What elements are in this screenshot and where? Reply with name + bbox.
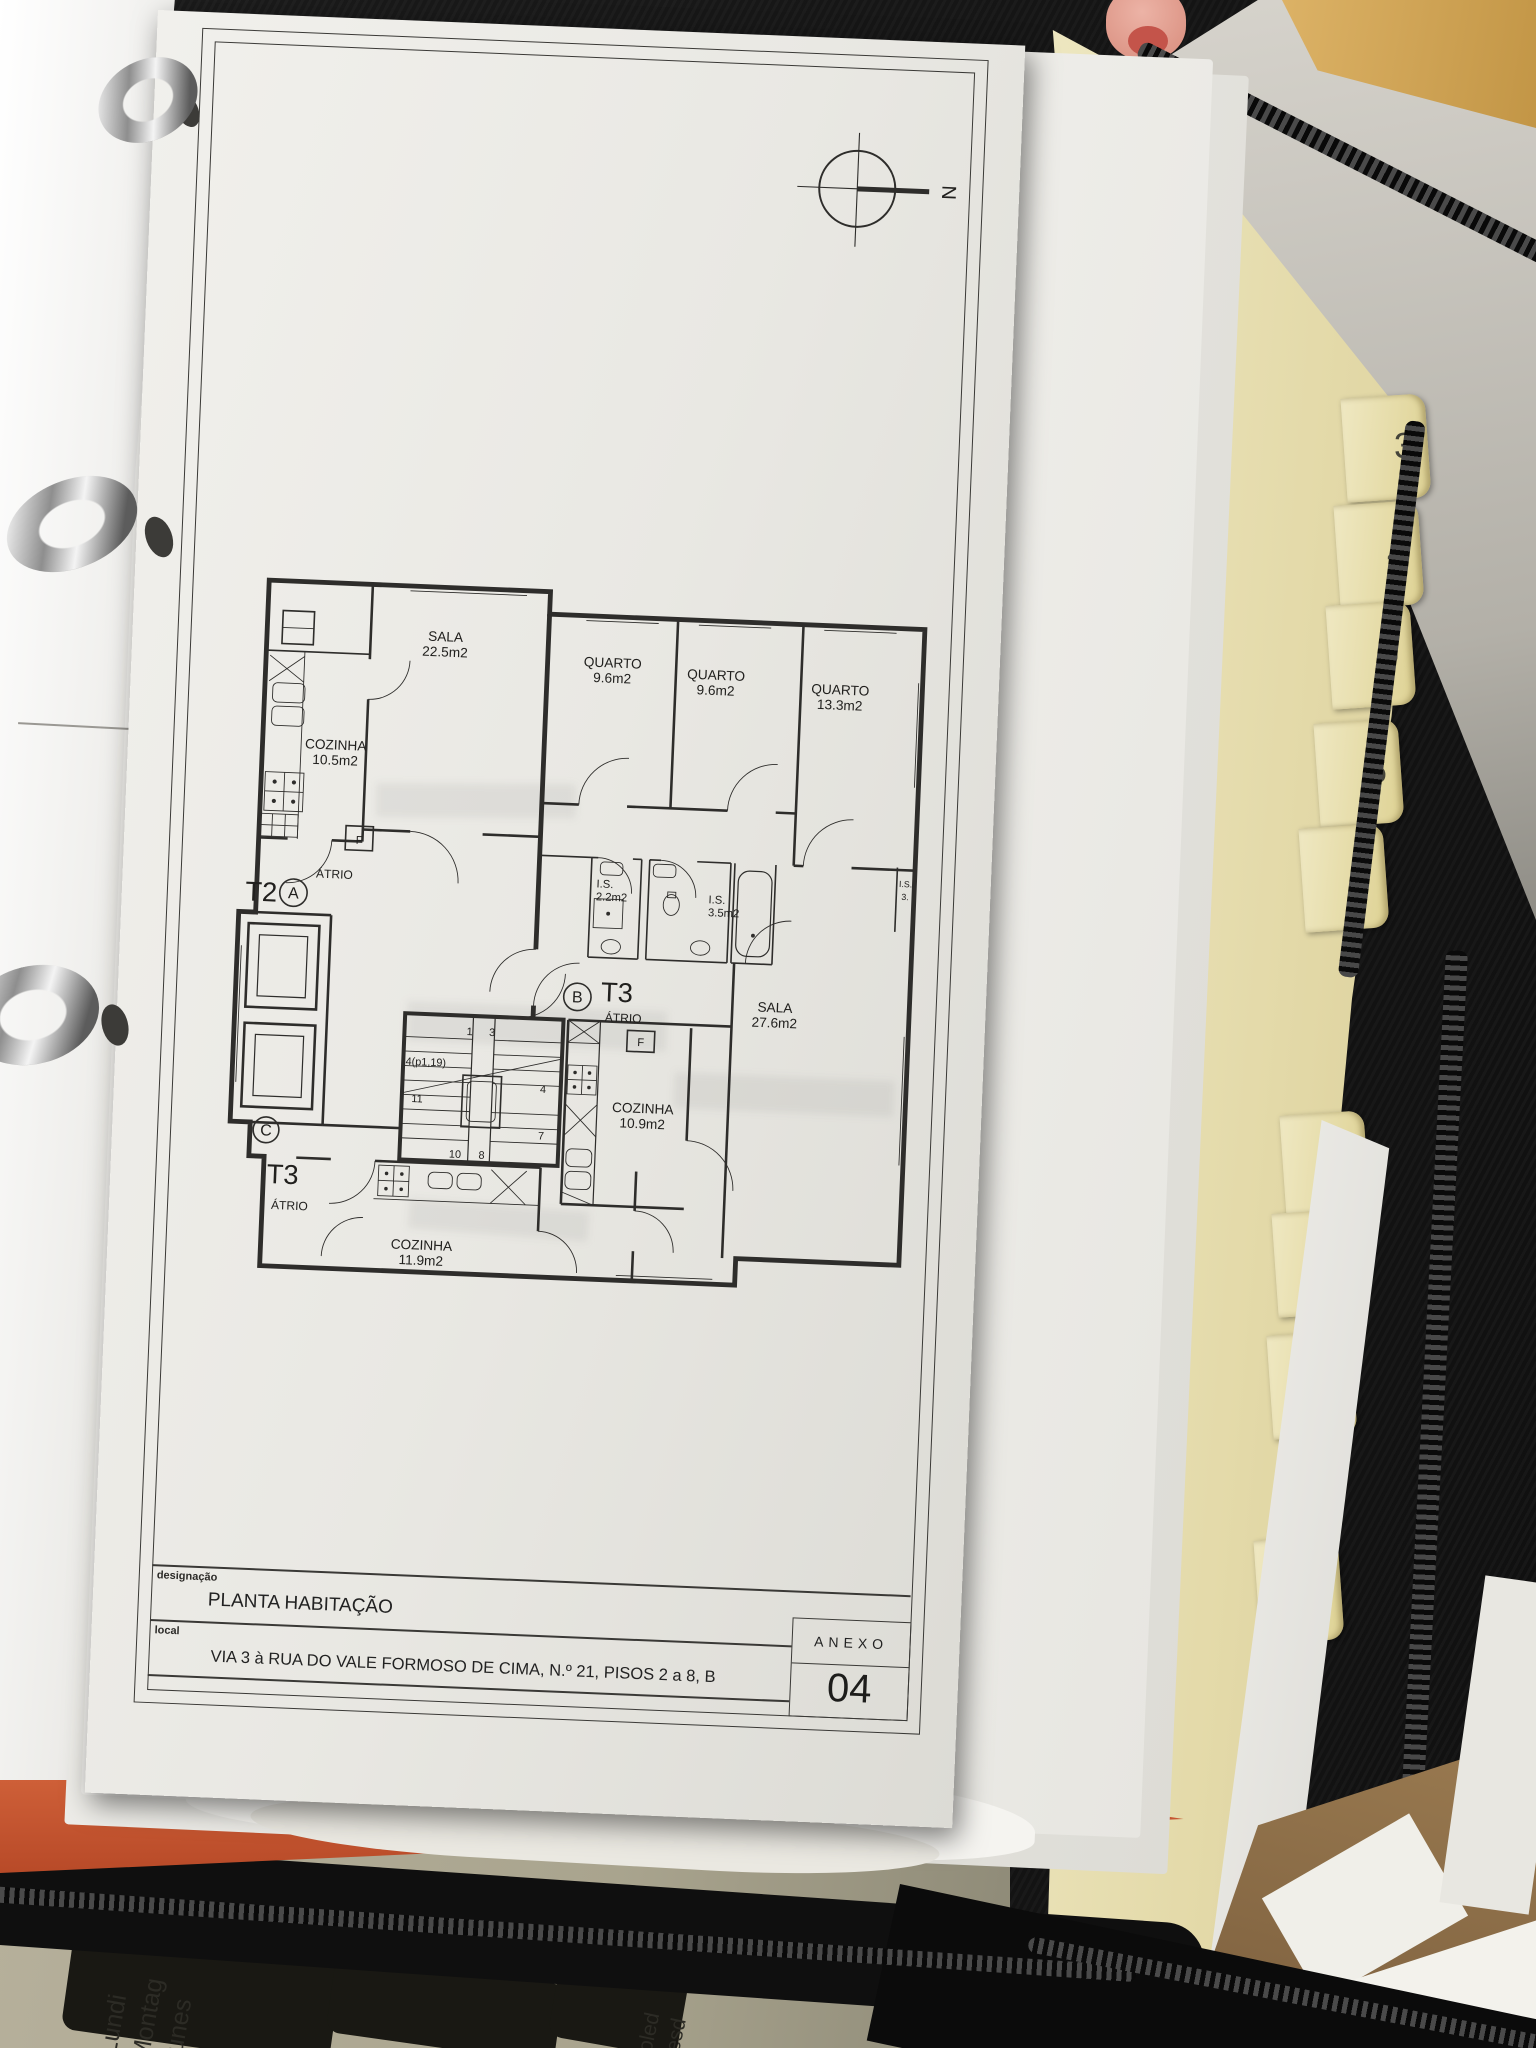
stair-number: 11 [411, 1093, 423, 1105]
f-marker: F [637, 1037, 644, 1049]
elevators [230, 911, 409, 1128]
anexo-number: 04 [790, 1664, 909, 1714]
f-marker: F [355, 835, 362, 847]
north-label: N [937, 185, 960, 200]
stair-number: 1 [466, 1026, 473, 1038]
room-label: QUARTO [584, 654, 643, 671]
room-area: 27.6m2 [751, 1015, 797, 1032]
room-area: 11.9m2 [398, 1252, 443, 1269]
north-compass: N [777, 124, 982, 262]
bathrooms [536, 855, 776, 964]
anexo-box: ANEXO 04 [789, 1617, 912, 1721]
room-labels: SALA 22.5m2 QUARTO 9.6m2 QUARTO 9.6m2 QU… [284, 624, 871, 1286]
unit-letter: B [572, 988, 583, 1006]
atrio-label: ÁTRIO [316, 866, 353, 882]
floor-plan: F [180, 558, 950, 1332]
atrio-label: ÁTRIO [605, 1009, 642, 1025]
room-label: I.S. [596, 878, 613, 891]
unit-letter: A [288, 884, 300, 902]
room-area: 22.5m2 [422, 644, 468, 661]
t3c-area [292, 1158, 677, 1283]
room-area: 9.6m2 [593, 670, 632, 687]
unit-type: T3 [600, 976, 633, 1008]
atrio-label: ÁTRIO [271, 1197, 308, 1213]
sala-t2-walls [361, 830, 541, 887]
stair-number: 4(p1,19) [405, 1056, 446, 1070]
designacao-label: designação [157, 1569, 218, 1583]
room-area: 9.6m2 [696, 682, 735, 699]
room-label: I.S. [708, 894, 725, 907]
local-label: local [154, 1624, 180, 1637]
room-area: 10.5m2 [312, 752, 358, 769]
room-area: 2.2m2 [596, 891, 628, 904]
room-label: I.S. [899, 879, 913, 890]
photo-scene: 3 4 5 6 7 8 9 0 2 Lundi Montag Lunes Ma … [0, 0, 1536, 2048]
edge-is-room: I.S. 3. [895, 868, 913, 933]
drawing-sheet: N [85, 10, 1025, 1828]
quartos [540, 614, 925, 870]
room-area: 13.3m2 [817, 697, 863, 714]
unit-type: T2 [245, 875, 278, 907]
room-label: SALA [757, 1000, 793, 1016]
anexo-label: ANEXO [792, 1618, 911, 1668]
stair-number: 7 [538, 1130, 545, 1142]
stair-number: 8 [478, 1150, 485, 1162]
stair-number: 10 [449, 1148, 462, 1160]
stairwell: 1 3 4(p1,19) 4 11 7 10 8 [399, 967, 565, 1166]
room-area: 3.5m2 [708, 907, 740, 920]
room-label: QUARTO [811, 681, 870, 698]
kitchen-t2: F [257, 580, 413, 887]
binder-tab: 5 [1325, 600, 1416, 710]
room-area: 10.9m2 [619, 1115, 665, 1132]
room-label: QUARTO [687, 667, 746, 684]
unit-letter: C [260, 1121, 272, 1139]
room-label: 3. [901, 892, 909, 902]
stair-number: 3 [489, 1027, 496, 1039]
stair-number: 4 [540, 1084, 547, 1096]
room-label: SALA [428, 629, 464, 645]
unit-type: T3 [266, 1158, 299, 1190]
